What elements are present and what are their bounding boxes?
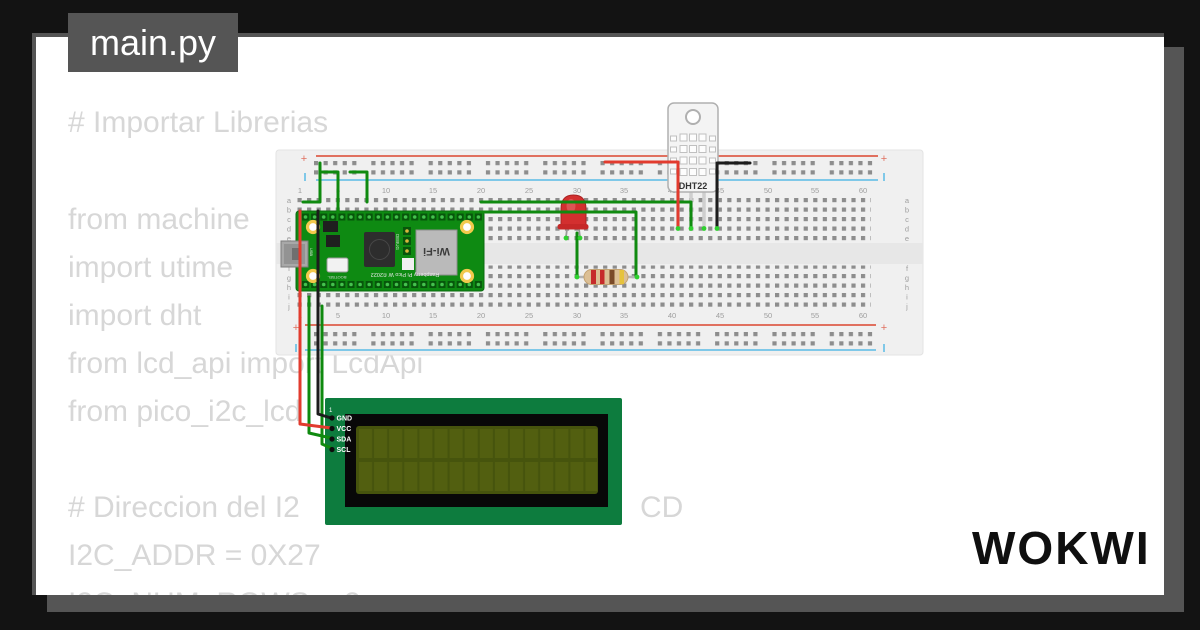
dht22-label: DHT22 xyxy=(679,181,708,191)
smd-component xyxy=(323,221,338,232)
svg-text:30: 30 xyxy=(573,311,581,320)
file-tab-label: main.py xyxy=(90,22,216,64)
svg-text:e: e xyxy=(905,234,909,243)
mounting-hole xyxy=(462,222,473,233)
editor-panel: # Importar Librerias from machine import… xyxy=(32,33,1164,595)
svg-text:10: 10 xyxy=(382,186,390,195)
wokwi-preview-card: main.py # Importar Librerias from machin… xyxy=(0,0,1200,630)
raspberry-pi-pico-w[interactable]: USB BOOTSEL DEBUG xyxy=(281,211,484,291)
svg-text:5: 5 xyxy=(336,311,340,320)
lcd-pin-label: SCL xyxy=(337,447,352,454)
rail-plus: + xyxy=(881,153,887,165)
svg-text:25: 25 xyxy=(525,311,533,320)
lcd-pin-label: VCC xyxy=(337,426,352,433)
svg-text:h: h xyxy=(905,283,909,292)
svg-text:60: 60 xyxy=(859,186,867,195)
lcd1602-display[interactable]: 1 xyxy=(325,398,622,525)
svg-text:b: b xyxy=(905,206,909,215)
svg-text:d: d xyxy=(905,225,909,234)
rail-plus: + xyxy=(301,153,307,165)
wokwi-logo[interactable]: WOKWI xyxy=(972,521,1151,575)
rail-plus: + xyxy=(293,322,299,334)
svg-text:j: j xyxy=(905,302,908,311)
smd-component xyxy=(402,258,414,270)
mounting-hole xyxy=(462,271,473,282)
svg-text:25: 25 xyxy=(525,186,533,195)
svg-text:USB: USB xyxy=(309,248,314,257)
svg-text:30: 30 xyxy=(573,186,581,195)
smd-component xyxy=(326,235,340,247)
rp2040-chip xyxy=(364,232,395,267)
svg-text:DEBUG: DEBUG xyxy=(395,234,400,251)
wifi-module: Wi-Fi xyxy=(416,230,457,275)
lcd-pin-label: GND xyxy=(337,416,353,423)
circuit-canvas: + + + + 15 1015 2025 3035 4045 5055 60 xyxy=(36,37,1164,595)
svg-text:10: 10 xyxy=(382,311,390,320)
svg-text:BOOTSEL: BOOTSEL xyxy=(327,275,347,280)
svg-text:40: 40 xyxy=(668,311,676,320)
svg-text:35: 35 xyxy=(620,186,628,195)
svg-text:55: 55 xyxy=(811,311,819,320)
svg-text:20: 20 xyxy=(477,186,485,195)
svg-text:15: 15 xyxy=(429,186,437,195)
svg-text:35: 35 xyxy=(620,311,628,320)
svg-text:Wi-Fi: Wi-Fi xyxy=(423,245,450,257)
svg-text:h: h xyxy=(287,283,291,292)
svg-text:15: 15 xyxy=(429,311,437,320)
svg-text:55: 55 xyxy=(811,186,819,195)
svg-text:j: j xyxy=(287,302,290,311)
svg-text:g: g xyxy=(905,274,909,283)
bootsel-button[interactable]: BOOTSEL xyxy=(327,258,348,280)
rail-plus: + xyxy=(881,322,887,334)
svg-text:c: c xyxy=(905,215,909,224)
svg-text:50: 50 xyxy=(764,311,772,320)
svg-text:1: 1 xyxy=(298,186,302,195)
svg-text:g: g xyxy=(287,274,291,283)
svg-text:d: d xyxy=(287,225,291,234)
lcd-pin-label: SDA xyxy=(337,437,352,444)
svg-text:c: c xyxy=(287,215,291,224)
svg-text:60: 60 xyxy=(859,311,867,320)
svg-text:20: 20 xyxy=(477,311,485,320)
svg-text:b: b xyxy=(287,206,291,215)
pico-silkscreen: Raspberry Pi Pico W ©2022 xyxy=(371,271,440,278)
svg-text:50: 50 xyxy=(764,186,772,195)
file-tab[interactable]: main.py xyxy=(68,13,238,72)
svg-text:45: 45 xyxy=(716,311,724,320)
